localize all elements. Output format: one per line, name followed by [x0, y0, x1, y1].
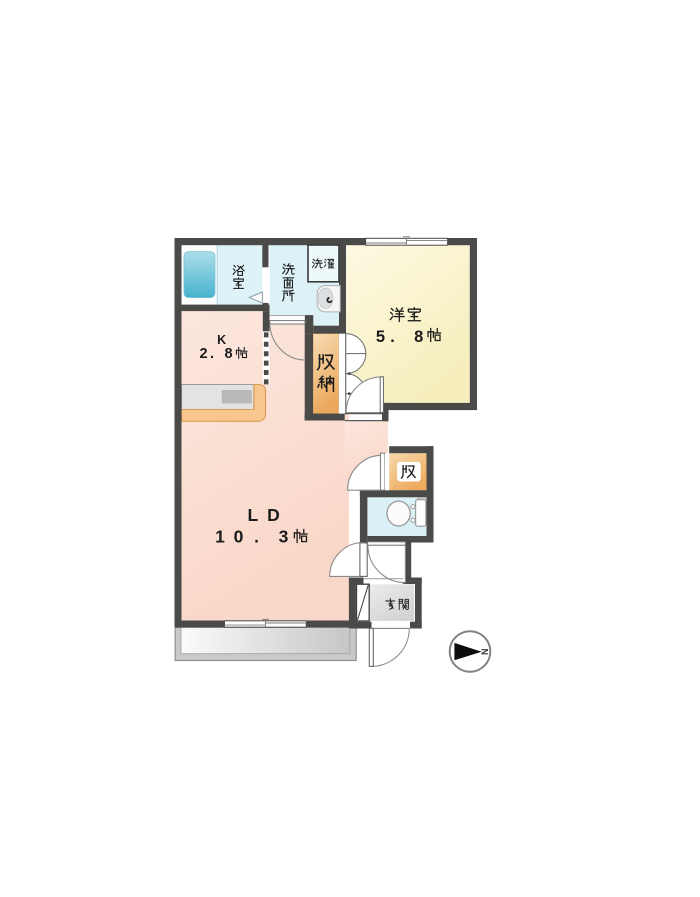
- svg-text:N: N: [479, 649, 489, 656]
- svg-text:1: 1: [215, 527, 225, 547]
- svg-text:D: D: [267, 505, 280, 525]
- svg-text:.: .: [254, 527, 259, 547]
- svg-text:.: .: [390, 328, 395, 346]
- svg-text:.: .: [210, 346, 214, 362]
- svg-text:8: 8: [224, 346, 232, 362]
- svg-text:K: K: [217, 333, 226, 347]
- svg-text:L: L: [247, 505, 258, 525]
- svg-text:5: 5: [376, 328, 385, 346]
- svg-text:8: 8: [414, 328, 423, 346]
- svg-text:3: 3: [279, 527, 289, 547]
- svg-text:2: 2: [199, 346, 207, 362]
- svg-text:0: 0: [234, 527, 244, 547]
